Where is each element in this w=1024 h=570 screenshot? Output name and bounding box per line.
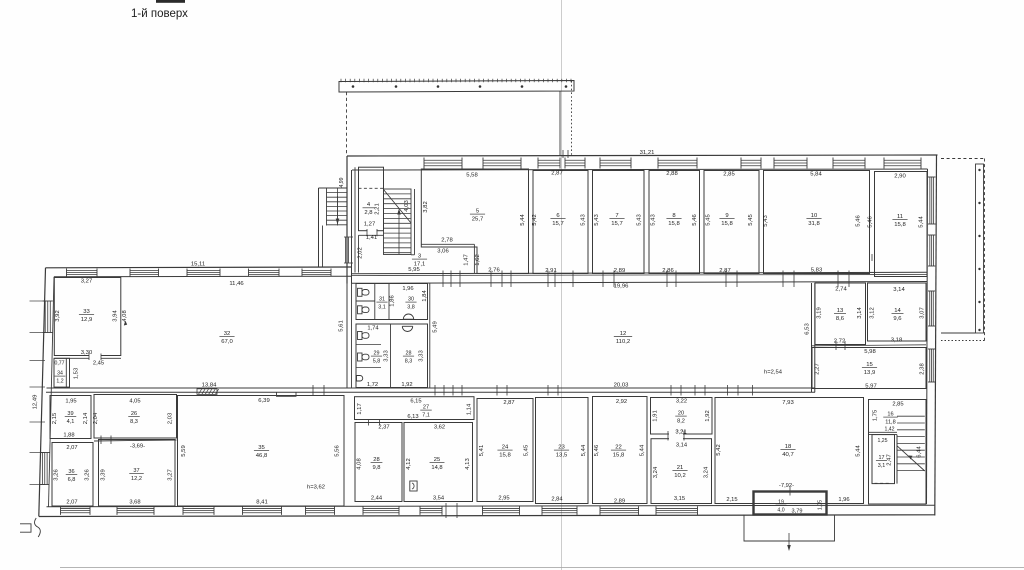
- svg-text:3,12: 3,12: [870, 307, 876, 318]
- svg-text:3,06: 3,06: [437, 249, 449, 255]
- svg-text:1,92: 1,92: [705, 410, 711, 421]
- svg-text:3,24: 3,24: [704, 466, 710, 478]
- svg-text:5,44: 5,44: [856, 445, 862, 457]
- svg-text:3,79: 3,79: [792, 509, 803, 515]
- svg-text:1,86: 1,86: [390, 295, 396, 307]
- svg-text:5,98: 5,98: [864, 349, 876, 355]
- svg-text:2,07: 2,07: [66, 499, 77, 505]
- svg-text:-3,69-: -3,69-: [130, 444, 145, 450]
- svg-text:1,42: 1,42: [884, 426, 894, 432]
- svg-text:1,17: 1,17: [357, 403, 363, 414]
- svg-text:1,74: 1,74: [367, 326, 379, 332]
- svg-text:3,07: 3,07: [920, 307, 926, 318]
- svg-text:1,96: 1,96: [402, 286, 413, 292]
- svg-text:6,53: 6,53: [804, 323, 810, 335]
- svg-text:1,47: 1,47: [464, 254, 470, 265]
- svg-text:18: 18: [785, 444, 792, 450]
- svg-text:5,45: 5,45: [748, 214, 754, 226]
- svg-text:1,41: 1,41: [366, 235, 377, 241]
- svg-text:8,41: 8,41: [256, 499, 267, 505]
- svg-text:6,13: 6,13: [407, 414, 418, 420]
- svg-text:24: 24: [502, 445, 509, 451]
- svg-text:7: 7: [615, 213, 618, 219]
- svg-text:1,2: 1,2: [56, 379, 63, 385]
- svg-text:25: 25: [434, 457, 440, 463]
- svg-text:31,8: 31,8: [808, 221, 820, 227]
- svg-text:1,53: 1,53: [74, 367, 80, 379]
- svg-text:3,92: 3,92: [55, 310, 61, 321]
- svg-text:3,22: 3,22: [676, 399, 687, 405]
- svg-text:2,47: 2,47: [886, 454, 892, 465]
- svg-text:1,72: 1,72: [367, 382, 378, 388]
- svg-text:2,87: 2,87: [551, 171, 562, 177]
- svg-text:3,14: 3,14: [857, 307, 863, 319]
- svg-text:2,91: 2,91: [545, 268, 556, 274]
- svg-text:19: 19: [778, 500, 784, 506]
- svg-text:3,8: 3,8: [407, 305, 415, 311]
- svg-text:15,7: 15,7: [552, 221, 563, 227]
- svg-text:2,87: 2,87: [719, 268, 730, 274]
- svg-text:6,15: 6,15: [410, 399, 421, 405]
- svg-text:17: 17: [879, 455, 885, 461]
- svg-text:67,0: 67,0: [221, 339, 233, 345]
- svg-text:1,92: 1,92: [401, 382, 412, 388]
- svg-text:3,62: 3,62: [434, 425, 445, 431]
- svg-text:2,38: 2,38: [919, 363, 925, 375]
- svg-text:15: 15: [866, 362, 873, 368]
- svg-text:2,37: 2,37: [378, 425, 389, 431]
- svg-text:3,21: 3,21: [675, 429, 686, 435]
- svg-text:8,6: 8,6: [836, 316, 845, 322]
- svg-text:5,59: 5,59: [181, 445, 187, 456]
- svg-text:2,07: 2,07: [66, 445, 77, 451]
- svg-text:5,97: 5,97: [865, 383, 876, 389]
- svg-text:29: 29: [374, 351, 380, 357]
- svg-text:3,94: 3,94: [113, 310, 119, 322]
- svg-text:22: 22: [615, 445, 622, 451]
- svg-text:3,39: 3,39: [100, 469, 106, 480]
- svg-text:3,54: 3,54: [433, 496, 445, 502]
- svg-text:2,72: 2,72: [834, 338, 845, 344]
- svg-text:28: 28: [373, 457, 379, 463]
- svg-text:36: 36: [68, 469, 74, 475]
- svg-text:5,45: 5,45: [524, 444, 530, 456]
- svg-text:h=3,62: h=3,62: [307, 485, 325, 491]
- svg-text:7,93: 7,93: [782, 400, 794, 406]
- svg-text:5,43: 5,43: [637, 214, 643, 226]
- svg-text:5,56: 5,56: [335, 445, 341, 457]
- svg-text:15,7: 15,7: [611, 221, 622, 227]
- svg-text:2,45: 2,45: [93, 361, 104, 367]
- svg-text:12,49: 12,49: [33, 395, 39, 410]
- svg-text:9,8: 9,8: [372, 465, 380, 471]
- svg-text:13,84: 13,84: [202, 382, 217, 388]
- svg-text:2,85: 2,85: [892, 401, 903, 407]
- svg-text:34: 34: [57, 371, 63, 377]
- svg-text:2,85: 2,85: [723, 171, 735, 177]
- svg-text:15,8: 15,8: [613, 453, 625, 459]
- svg-text:5,42: 5,42: [532, 214, 538, 225]
- svg-text:4,03: 4,03: [404, 200, 410, 212]
- svg-text:4,08: 4,08: [357, 458, 363, 470]
- svg-text:15,11: 15,11: [191, 262, 205, 268]
- svg-text:4,05: 4,05: [129, 398, 140, 404]
- svg-text:1,91: 1,91: [653, 410, 659, 421]
- svg-text:2,03: 2,03: [168, 412, 174, 424]
- svg-text:6,44: 6,44: [917, 446, 923, 458]
- svg-text:12,2: 12,2: [131, 476, 142, 482]
- svg-text:1,88: 1,88: [63, 433, 74, 439]
- svg-text:1,14: 1,14: [467, 403, 473, 415]
- svg-text:1,27: 1,27: [364, 221, 375, 227]
- svg-text:11: 11: [897, 214, 903, 220]
- svg-text:2,74: 2,74: [835, 287, 847, 293]
- svg-text:3,15: 3,15: [674, 496, 685, 502]
- svg-text:13: 13: [837, 308, 844, 314]
- svg-text:2,89: 2,89: [614, 268, 625, 274]
- svg-text:12,9: 12,9: [81, 317, 92, 323]
- svg-text:8,2: 8,2: [677, 419, 685, 425]
- svg-text:37: 37: [133, 468, 139, 474]
- svg-text:10: 10: [811, 213, 818, 219]
- svg-text:8,3: 8,3: [405, 359, 413, 365]
- svg-text:5,46: 5,46: [594, 444, 600, 456]
- svg-text:11,46: 11,46: [229, 281, 244, 287]
- svg-text:0,77: 0,77: [54, 361, 64, 367]
- svg-text:32: 32: [224, 331, 231, 337]
- svg-text:1,25: 1,25: [877, 438, 887, 444]
- svg-text:4,99: 4,99: [339, 177, 345, 187]
- svg-text:2,88: 2,88: [666, 171, 678, 177]
- svg-text:31,21: 31,21: [640, 150, 655, 156]
- svg-text:5,8: 5,8: [373, 359, 381, 365]
- svg-text:2,8: 2,8: [364, 210, 373, 216]
- svg-text:3,19: 3,19: [817, 307, 823, 318]
- svg-text:27: 27: [423, 405, 429, 411]
- svg-text:3,1: 3,1: [378, 305, 386, 311]
- svg-text:5,43: 5,43: [581, 214, 587, 226]
- svg-text:8,3: 8,3: [130, 419, 138, 425]
- svg-text:3,27: 3,27: [167, 469, 173, 480]
- svg-text:2,92: 2,92: [616, 399, 627, 405]
- svg-text:10,2: 10,2: [674, 473, 685, 479]
- svg-text:110,2: 110,2: [616, 339, 630, 345]
- svg-text:1,84: 1,84: [422, 290, 428, 302]
- svg-text:5,84: 5,84: [810, 171, 822, 177]
- svg-text:5,43: 5,43: [594, 214, 600, 226]
- svg-text:6,8: 6,8: [68, 477, 76, 483]
- svg-text:2,76: 2,76: [488, 267, 500, 273]
- svg-text:5,95: 5,95: [408, 267, 420, 273]
- svg-text:3,26: 3,26: [53, 469, 59, 481]
- svg-text:5,46: 5,46: [868, 216, 874, 228]
- svg-text:2,44: 2,44: [371, 496, 383, 502]
- svg-text:5,41: 5,41: [479, 445, 485, 456]
- svg-text:14,8: 14,8: [431, 465, 442, 471]
- svg-text:5,46: 5,46: [856, 215, 862, 227]
- svg-text:1,95: 1,95: [65, 398, 76, 404]
- svg-text:35: 35: [258, 445, 265, 451]
- svg-text:2,90: 2,90: [894, 174, 906, 180]
- svg-text:2,15: 2,15: [726, 497, 737, 503]
- svg-text:19,96: 19,96: [614, 283, 629, 289]
- svg-text:2,15: 2,15: [52, 412, 58, 424]
- svg-text:23: 23: [558, 445, 565, 451]
- svg-text:2,84: 2,84: [551, 497, 563, 503]
- svg-text:26: 26: [131, 411, 137, 417]
- svg-text:2,27: 2,27: [815, 363, 821, 374]
- svg-text:5,43: 5,43: [763, 215, 769, 227]
- svg-text:3,26: 3,26: [84, 469, 90, 481]
- svg-text:1,96: 1,96: [838, 497, 849, 503]
- svg-text:2,14: 2,14: [83, 412, 89, 424]
- svg-text:28: 28: [406, 351, 412, 357]
- svg-text:2,02: 2,02: [358, 247, 364, 258]
- svg-text:2,87: 2,87: [503, 400, 514, 406]
- svg-text:16: 16: [887, 412, 893, 418]
- svg-text:3,82: 3,82: [423, 201, 429, 212]
- svg-text:4,12: 4,12: [406, 458, 412, 469]
- svg-text:2,89: 2,89: [614, 498, 625, 504]
- svg-text:3,33: 3,33: [384, 350, 390, 362]
- svg-text:4,13: 4,13: [465, 458, 471, 470]
- svg-text:5,61: 5,61: [339, 320, 345, 331]
- svg-text:5,46: 5,46: [692, 214, 698, 226]
- svg-text:5,58: 5,58: [466, 173, 478, 179]
- svg-text:h=2,54: h=2,54: [764, 370, 783, 376]
- svg-text:5,45: 5,45: [706, 214, 712, 226]
- svg-text:2,21: 2,21: [375, 203, 381, 214]
- svg-text:7,1: 7,1: [422, 413, 430, 419]
- svg-text:2,86: 2,86: [662, 268, 674, 274]
- svg-text:9: 9: [725, 213, 728, 219]
- svg-text:25,7: 25,7: [472, 217, 483, 223]
- svg-text:5,44: 5,44: [520, 214, 526, 226]
- svg-text:4,08: 4,08: [122, 310, 128, 322]
- svg-text:5,43: 5,43: [651, 214, 657, 226]
- svg-text:39: 39: [67, 411, 73, 417]
- svg-text:3,68: 3,68: [129, 499, 140, 505]
- svg-text:5,44: 5,44: [640, 444, 646, 456]
- svg-text:30: 30: [408, 297, 414, 303]
- svg-text:40,7: 40,7: [782, 452, 793, 458]
- svg-text:12: 12: [620, 331, 627, 337]
- svg-text:15,8: 15,8: [668, 221, 680, 227]
- svg-text:3,27: 3,27: [81, 278, 92, 284]
- svg-text:20,03: 20,03: [614, 382, 629, 388]
- svg-text:13,5: 13,5: [556, 453, 568, 459]
- svg-text:46,8: 46,8: [256, 453, 268, 459]
- svg-text:6,39: 6,39: [258, 398, 269, 404]
- svg-text:3,24: 3,24: [653, 466, 659, 478]
- svg-text:5,44: 5,44: [581, 444, 587, 456]
- svg-text:20: 20: [678, 411, 684, 417]
- svg-text:33: 33: [83, 309, 90, 315]
- svg-text:5,44: 5,44: [919, 216, 925, 228]
- svg-text:5,83: 5,83: [811, 267, 823, 273]
- svg-text:1-й поверх: 1-й поверх: [131, 8, 188, 20]
- svg-text:4,1: 4,1: [67, 419, 75, 425]
- svg-text:15,8: 15,8: [721, 221, 733, 227]
- svg-text:3,14: 3,14: [893, 287, 905, 293]
- svg-text:3,14: 3,14: [676, 443, 688, 449]
- svg-text:15,8: 15,8: [894, 222, 906, 228]
- svg-text:31: 31: [379, 297, 385, 303]
- svg-text:3,33: 3,33: [418, 350, 424, 362]
- svg-text:5,42: 5,42: [716, 444, 722, 455]
- svg-text:15,8: 15,8: [499, 453, 511, 459]
- svg-text:5,49: 5,49: [433, 321, 439, 332]
- svg-text:11,8: 11,8: [885, 420, 895, 426]
- svg-text:21: 21: [677, 465, 684, 471]
- svg-text:2,95: 2,95: [498, 496, 509, 502]
- svg-text:4,0: 4,0: [777, 508, 784, 514]
- svg-text:14: 14: [894, 308, 901, 314]
- svg-text:-7,92-: -7,92-: [779, 483, 794, 489]
- svg-text:2,78: 2,78: [441, 238, 453, 244]
- svg-text:3,18: 3,18: [891, 337, 903, 343]
- svg-text:3,1: 3,1: [878, 463, 886, 469]
- svg-text:13,9: 13,9: [864, 370, 875, 376]
- svg-text:1,75: 1,75: [873, 409, 879, 421]
- svg-text:9,6: 9,6: [893, 316, 902, 322]
- svg-text:1,62: 1,62: [475, 254, 481, 265]
